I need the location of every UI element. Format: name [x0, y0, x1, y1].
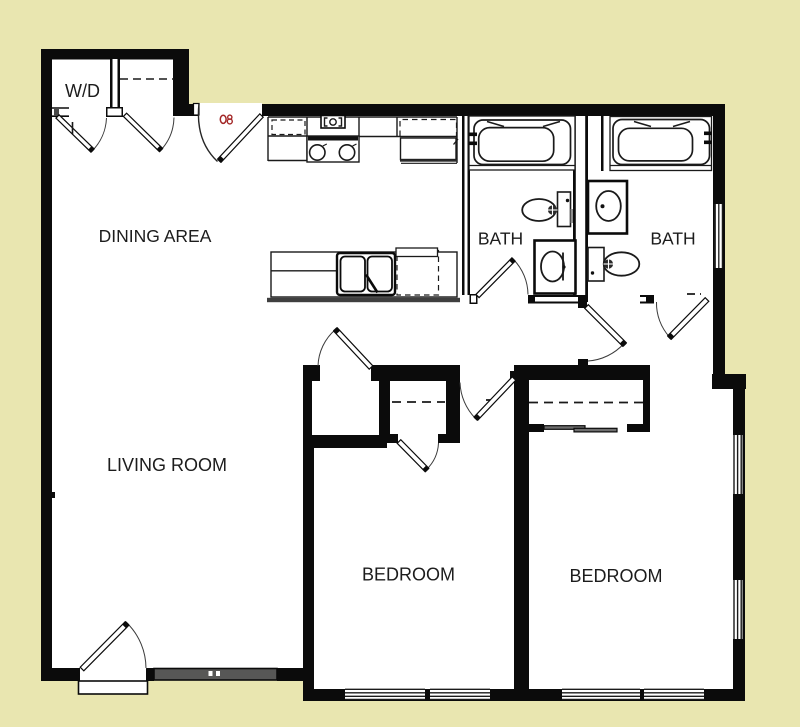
- svg-text:BATH: BATH: [650, 229, 695, 249]
- svg-text:BATH: BATH: [478, 229, 523, 249]
- svg-text:W/D: W/D: [65, 81, 100, 101]
- svg-text:BEDROOM: BEDROOM: [569, 566, 662, 586]
- svg-text:DINING AREA: DINING AREA: [99, 226, 212, 246]
- svg-text:LIVING ROOM: LIVING ROOM: [107, 455, 227, 475]
- svg-text:BEDROOM: BEDROOM: [362, 565, 455, 585]
